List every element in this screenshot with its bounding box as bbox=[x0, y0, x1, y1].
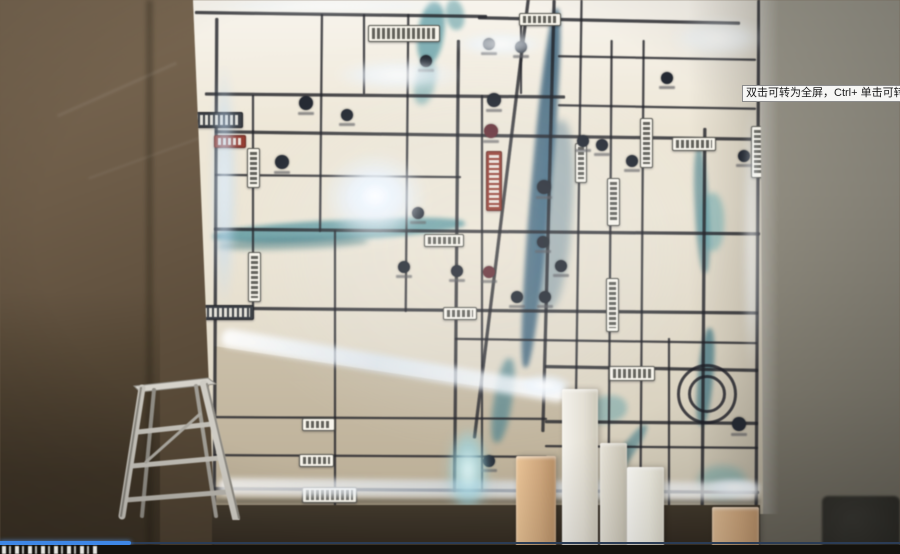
map-road-label bbox=[247, 148, 260, 188]
map-logo-caption bbox=[624, 169, 640, 172]
map-road-label bbox=[443, 307, 477, 320]
fg-block bbox=[562, 389, 598, 545]
map-logo-caption bbox=[486, 109, 502, 112]
map-logo-caption bbox=[483, 140, 499, 143]
map-logo-caption bbox=[575, 149, 591, 152]
map-road-label bbox=[424, 234, 464, 247]
player-bottom-bar bbox=[0, 545, 900, 554]
map-road bbox=[363, 14, 365, 94]
map-logo-caption bbox=[553, 274, 569, 277]
step-ladder bbox=[112, 370, 244, 520]
map-logo-caption bbox=[536, 196, 552, 199]
map-road-label-text bbox=[613, 369, 651, 378]
map-logo-caption bbox=[594, 153, 610, 156]
map-logo-marker bbox=[537, 236, 549, 248]
player-tooltip-text: 双击可转为全屏，Ctrl+ 单击可转为 bbox=[746, 87, 900, 99]
map-logo-marker bbox=[484, 124, 498, 138]
map-road-label-text bbox=[676, 140, 712, 148]
map-logo-marker bbox=[483, 266, 495, 278]
map-road bbox=[334, 230, 336, 508]
map-road-label bbox=[302, 418, 335, 431]
map-road-label-text bbox=[610, 182, 617, 222]
map-logo-marker bbox=[661, 72, 673, 84]
map-road-label-text bbox=[523, 16, 557, 23]
map-logo-marker bbox=[398, 261, 410, 273]
fg-block bbox=[712, 507, 759, 545]
player-tooltip: 双击可转为全屏，Ctrl+ 单击可转为 bbox=[742, 85, 900, 102]
map-logo-marker bbox=[451, 265, 463, 277]
map-logo-caption bbox=[481, 52, 497, 55]
map-logo-marker bbox=[596, 139, 608, 151]
floor bbox=[212, 505, 760, 545]
map-logo-caption bbox=[659, 86, 675, 89]
map-road-label bbox=[606, 278, 619, 332]
map-road-label-text bbox=[643, 122, 650, 164]
map-road-label bbox=[214, 135, 246, 148]
map-road-label-text bbox=[303, 457, 330, 464]
map-logo-marker bbox=[577, 135, 589, 147]
map-logo-marker bbox=[275, 155, 289, 169]
map-road-label-text bbox=[218, 138, 242, 145]
photo-content bbox=[0, 0, 900, 554]
map-logo-marker bbox=[511, 291, 523, 303]
map-road bbox=[481, 95, 483, 492]
map-logo-marker bbox=[738, 150, 750, 162]
map-road-label bbox=[672, 137, 716, 151]
map-logo-caption bbox=[396, 275, 412, 278]
map-logo-caption bbox=[513, 55, 529, 58]
map-road-label-text bbox=[447, 310, 473, 317]
map-road-label-text bbox=[372, 28, 436, 39]
map-logo-caption bbox=[535, 250, 551, 253]
map-road-label-text bbox=[306, 421, 331, 428]
map-road-label bbox=[299, 454, 334, 467]
map-road-label-text bbox=[251, 256, 258, 298]
map-road-label-text bbox=[609, 282, 616, 328]
map-logo-caption bbox=[731, 433, 747, 436]
map-logo-caption bbox=[418, 69, 434, 72]
map-road-label bbox=[609, 366, 655, 381]
map-road-label-text bbox=[250, 152, 257, 184]
map-road-label bbox=[248, 252, 261, 302]
video-progress-track[interactable] bbox=[0, 542, 900, 544]
fg-block bbox=[516, 456, 556, 545]
map-logo-caption bbox=[274, 171, 290, 174]
map-logo-caption bbox=[410, 221, 426, 224]
map-logo-caption bbox=[481, 469, 497, 472]
map-road-label-text bbox=[428, 237, 460, 244]
map-logo-caption bbox=[509, 305, 525, 308]
map-logo-marker bbox=[420, 55, 432, 67]
map-logo-caption bbox=[339, 123, 355, 126]
map-road-label bbox=[519, 13, 561, 26]
map-road-label bbox=[486, 151, 502, 211]
map-logo-marker bbox=[412, 207, 424, 219]
map-logo-caption bbox=[537, 305, 553, 308]
map-logo-marker bbox=[626, 155, 638, 167]
map-road-label-text bbox=[199, 308, 250, 317]
map-logo-marker bbox=[537, 180, 551, 194]
map-logo-caption bbox=[736, 164, 752, 167]
map-logo-caption bbox=[449, 279, 465, 282]
map-logo-marker bbox=[515, 41, 527, 53]
map-road-label-text bbox=[489, 155, 499, 207]
video-frame: 双击可转为全屏，Ctrl+ 单击可转为 bbox=[0, 0, 900, 554]
fg-block bbox=[627, 467, 664, 545]
map-logo-marker bbox=[539, 291, 551, 303]
map-road-label bbox=[607, 178, 620, 226]
map-logo-marker bbox=[483, 455, 495, 467]
map-logo-marker bbox=[732, 417, 746, 431]
map-logo-marker bbox=[487, 93, 501, 107]
map-road-label bbox=[368, 25, 440, 42]
map-logo-marker bbox=[483, 38, 495, 50]
map-bottom-edge bbox=[214, 499, 760, 504]
map-logo-marker bbox=[299, 96, 313, 110]
player-clipped-text bbox=[2, 546, 97, 554]
map-logo-marker bbox=[341, 109, 353, 121]
fg-block bbox=[600, 443, 627, 545]
map-logo-caption bbox=[481, 280, 497, 283]
map-roundabout bbox=[688, 375, 726, 413]
map-road-label bbox=[640, 118, 653, 168]
map-logo-caption bbox=[298, 112, 314, 115]
map-logo-marker bbox=[555, 260, 567, 272]
